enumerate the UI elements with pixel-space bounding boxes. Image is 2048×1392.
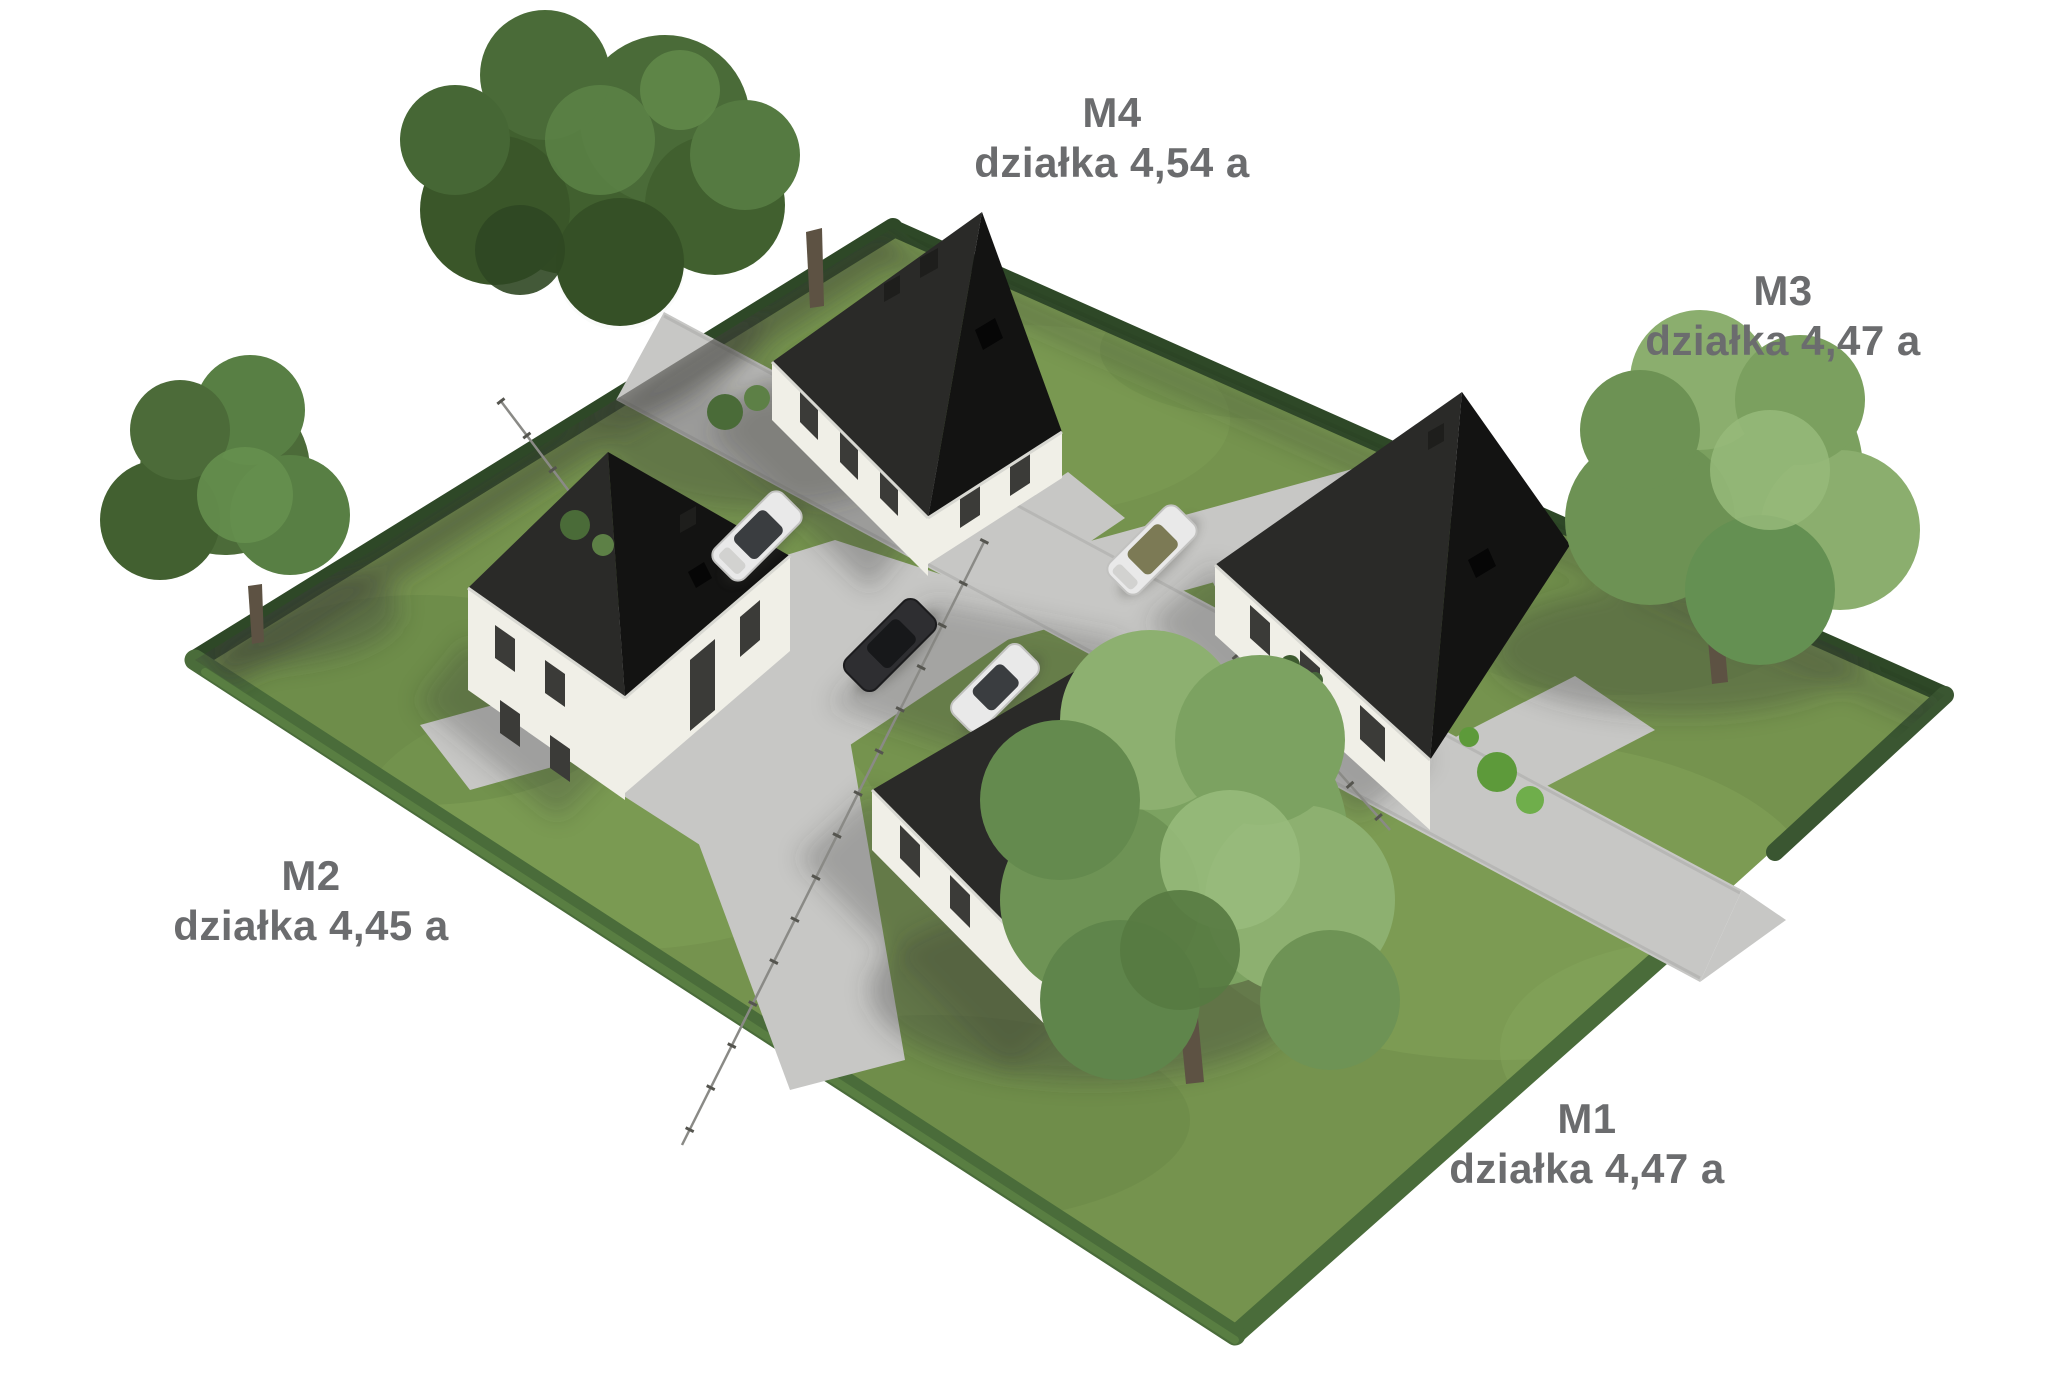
site-plan-scene: M1 działka 4,47 a M2 działka 4,45 a M3 d… (0, 0, 2048, 1392)
plot-label-m3: M3 działka 4,47 a (1645, 266, 1921, 366)
plot-label-m1: M1 działka 4,47 a (1449, 1094, 1725, 1194)
plot-label-m4: M4 działka 4,54 a (974, 88, 1250, 188)
plot-area: działka 4,47 a (1645, 316, 1921, 366)
plot-area: działka 4,47 a (1449, 1144, 1725, 1194)
plot-area: działka 4,45 a (173, 901, 449, 951)
plot-name: M3 (1645, 266, 1921, 316)
plot-area: działka 4,54 a (974, 138, 1250, 188)
plot-name: M1 (1449, 1094, 1725, 1144)
plot-label-m2: M2 działka 4,45 a (173, 851, 449, 951)
tree-top (400, 10, 824, 330)
plot-name: M2 (173, 851, 449, 901)
plot-name: M4 (974, 88, 1250, 138)
site-render (0, 0, 2048, 1392)
